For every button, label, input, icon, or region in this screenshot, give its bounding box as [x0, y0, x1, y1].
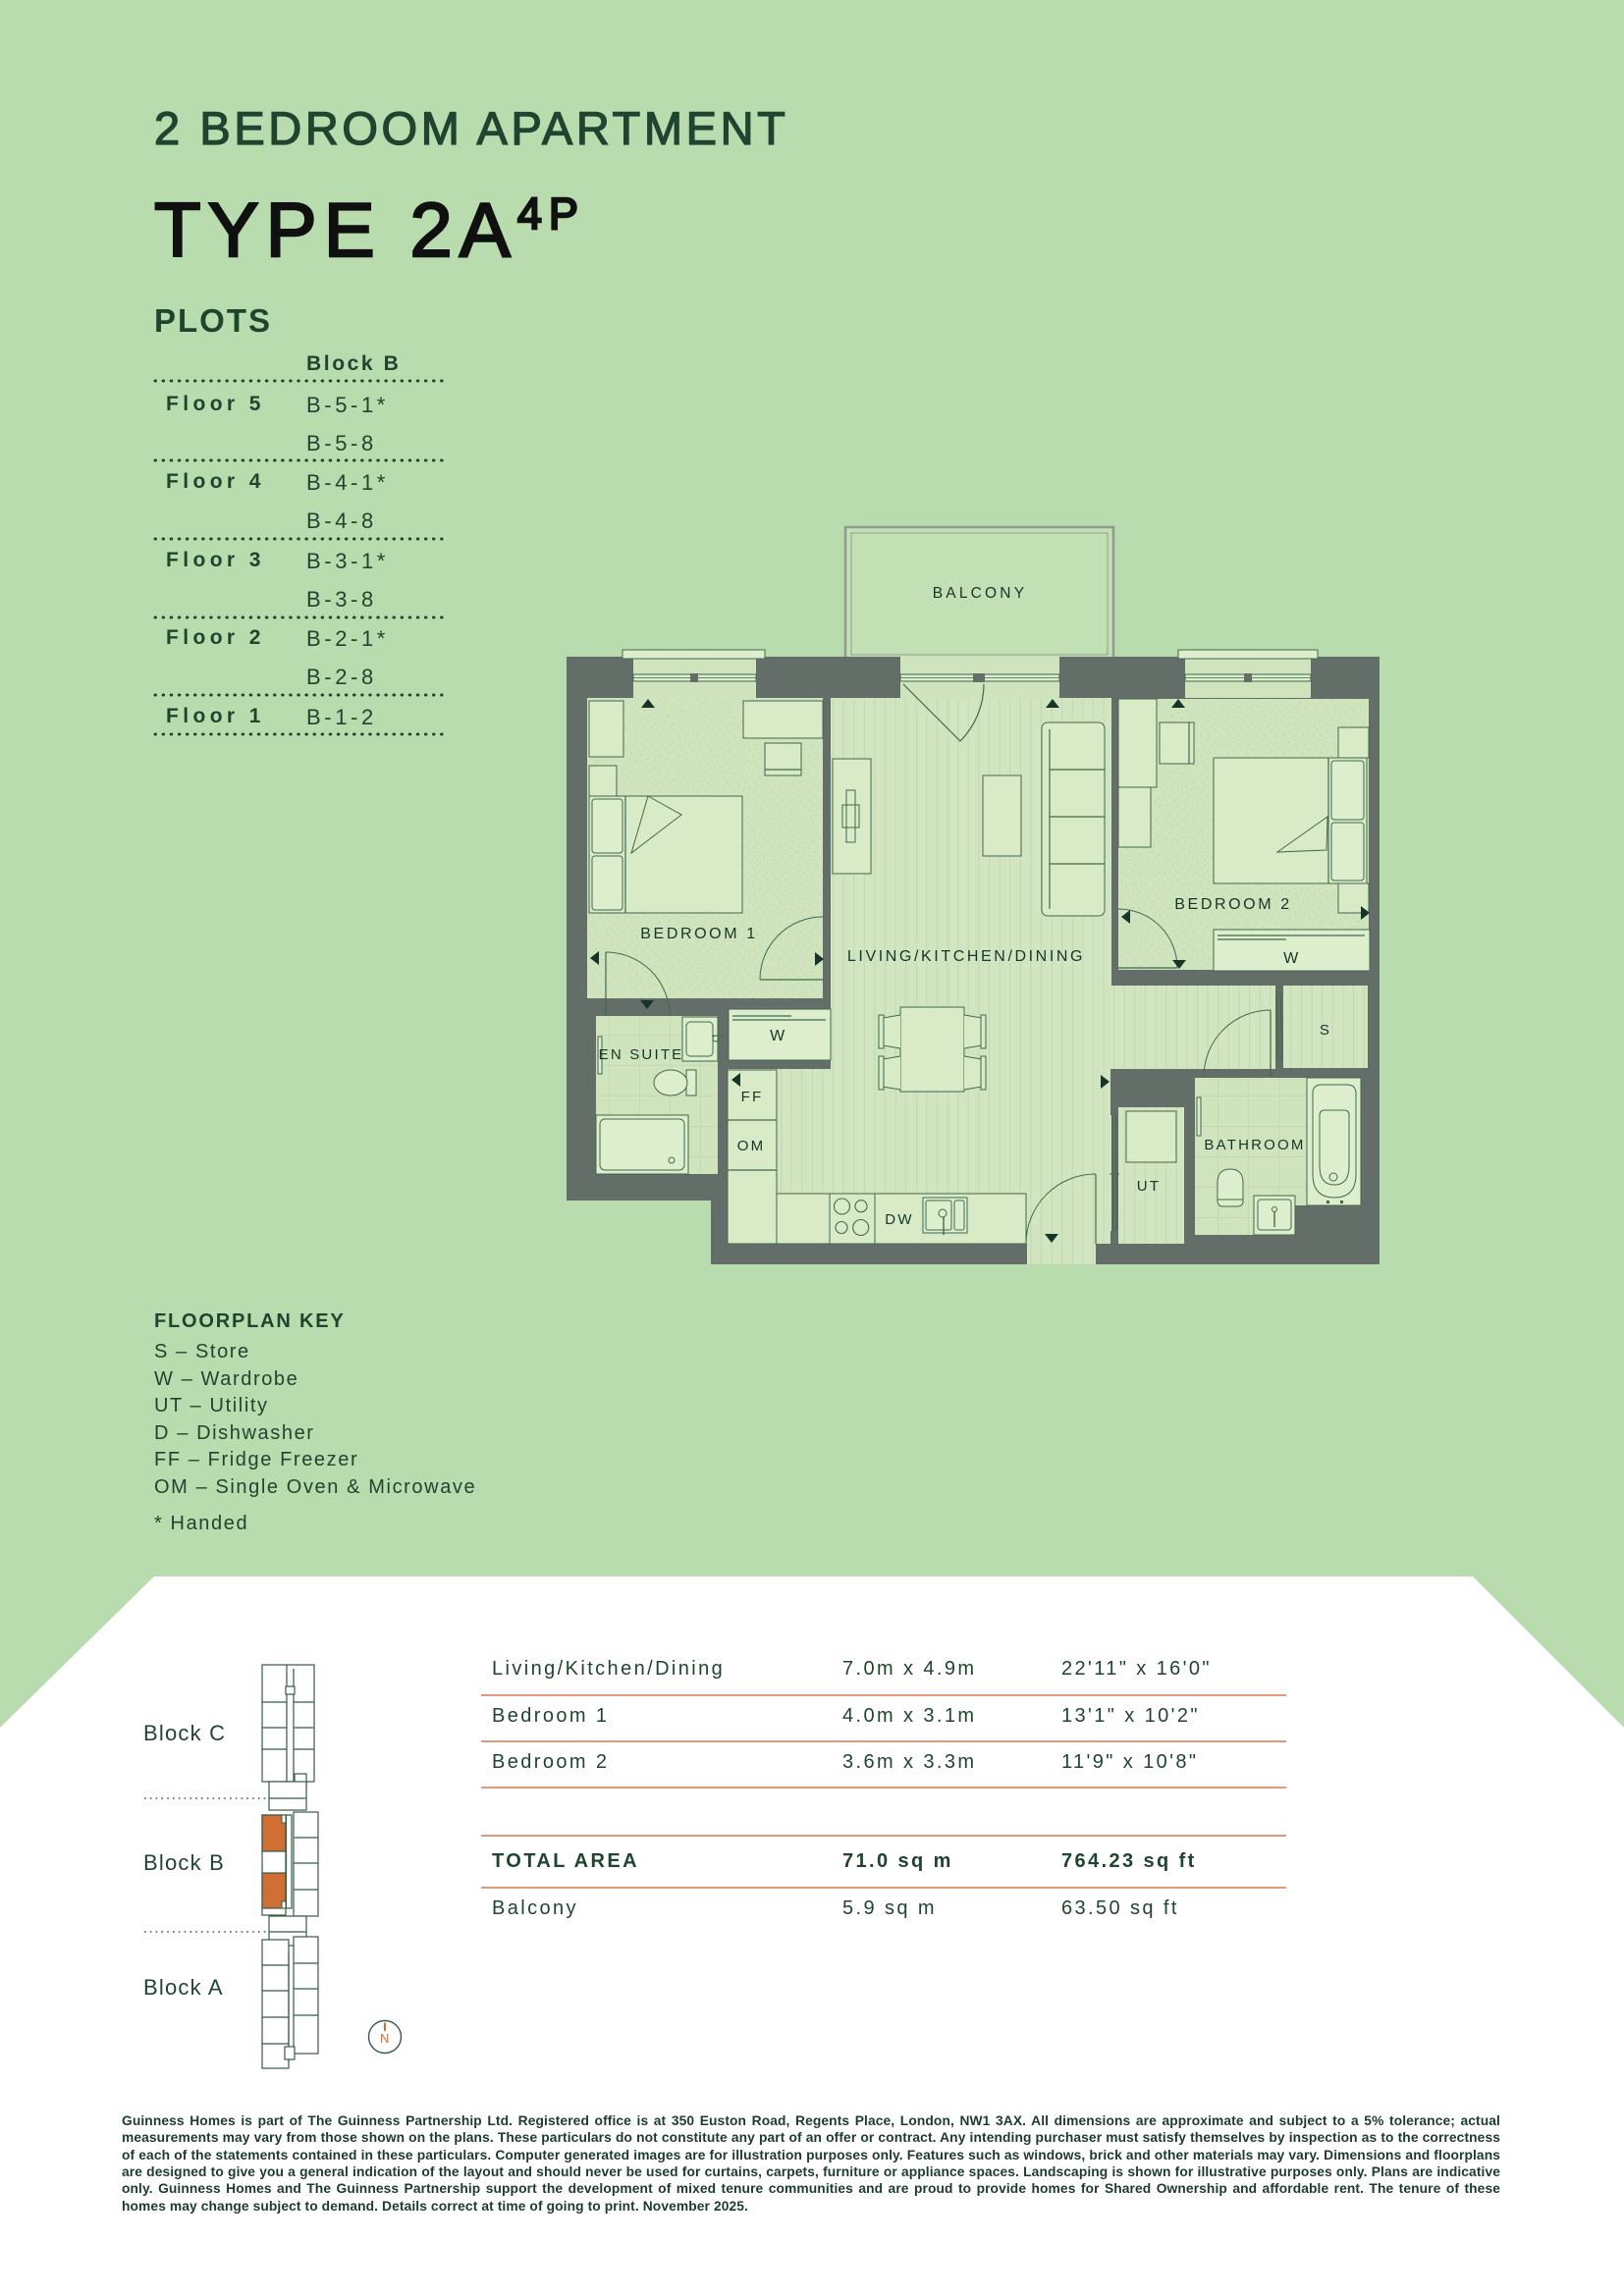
svg-text:N: N [380, 2031, 390, 2046]
svg-text:BEDROOM 2: BEDROOM 2 [1174, 896, 1291, 913]
svg-text:UT: UT [1137, 1178, 1161, 1195]
svg-text:BATHROOM: BATHROOM [1204, 1137, 1305, 1153]
svg-text:DW: DW [885, 1211, 913, 1228]
svg-text:FF: FF [741, 1089, 764, 1105]
svg-text:W: W [1283, 950, 1301, 967]
svg-text:EN SUITE: EN SUITE [599, 1046, 684, 1063]
svg-text:BEDROOM 1: BEDROOM 1 [640, 926, 757, 942]
svg-text:BALCONY: BALCONY [933, 585, 1027, 602]
svg-text:W: W [770, 1028, 787, 1044]
svg-text:S: S [1320, 1022, 1331, 1039]
svg-text:OM: OM [737, 1138, 766, 1154]
svg-text:LIVING/KITCHEN/DINING: LIVING/KITCHEN/DINING [847, 948, 1085, 965]
